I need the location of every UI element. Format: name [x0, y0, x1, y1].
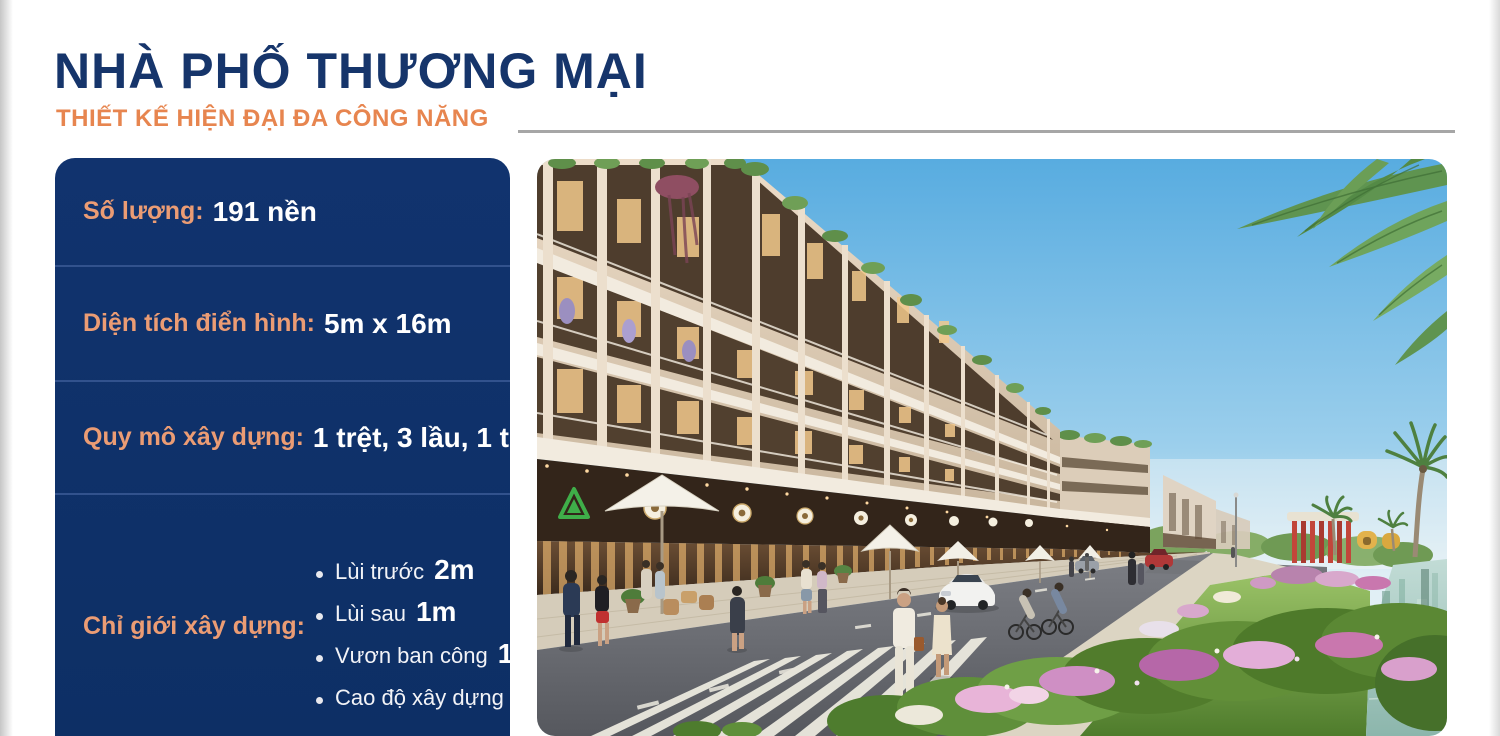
page-title: NHÀ PHỐ THƯƠNG MẠI	[54, 42, 648, 100]
bullet-value: 2m	[434, 554, 474, 586]
page-edge-shade-left	[0, 0, 13, 736]
setback-list: Lùi trước 2m Lùi sau 1m Vươn ban công 1,…	[314, 554, 570, 722]
panel-section-area: Diện tích điển hình: 5m x 16m	[55, 265, 510, 380]
bullet-text: Lùi sau	[335, 601, 406, 627]
bullet-dot	[316, 655, 323, 662]
quantity-label: Số lượng:	[83, 197, 204, 226]
setback-label: Chỉ giới xây dựng:	[83, 612, 305, 641]
bullet-value: 1m	[416, 596, 456, 628]
bullet-dot	[316, 571, 323, 578]
panel-section-scale: Quy mô xây dựng: 1 trệt, 3 lầu, 1 tum	[55, 380, 510, 493]
list-item: Lùi trước 2m	[316, 554, 570, 596]
bullet-dot	[316, 697, 323, 704]
quantity-value: 191 nền	[213, 196, 317, 228]
panel-section-quantity: Số lượng: 191 nền	[55, 158, 510, 265]
brochure-page: NHÀ PHỐ THƯƠNG MẠI THIẾT KẾ HIỆN ĐẠI ĐA …	[0, 0, 1500, 736]
list-item: Vươn ban công 1,2m	[316, 638, 570, 680]
area-label: Diện tích điển hình:	[83, 309, 315, 338]
header-rule	[518, 130, 1455, 133]
hero-render	[537, 159, 1447, 736]
panel-section-setback: Chỉ giới xây dựng: Lùi trước 2m Lùi sau …	[55, 493, 510, 736]
area-value: 5m x 16m	[324, 308, 452, 340]
page-subtitle: THIẾT KẾ HIỆN ĐẠI ĐA CÔNG NĂNG	[56, 105, 489, 133]
bullet-text: Vươn ban công	[335, 643, 488, 669]
bullet-dot	[316, 613, 323, 620]
list-item: Lùi sau 1m	[316, 596, 570, 638]
info-panel: Số lượng: 191 nền Diện tích điển hình: 5…	[55, 158, 510, 736]
scale-value: 1 trệt, 3 lầu, 1 tum	[313, 422, 551, 454]
list-item: Cao độ xây dựng 17m	[316, 680, 570, 722]
page-edge-shade-right	[1489, 0, 1500, 736]
bullet-text: Lùi trước	[335, 559, 424, 585]
bullet-text: Cao độ xây dựng	[335, 685, 504, 711]
scale-label: Quy mô xây dựng:	[83, 423, 304, 452]
